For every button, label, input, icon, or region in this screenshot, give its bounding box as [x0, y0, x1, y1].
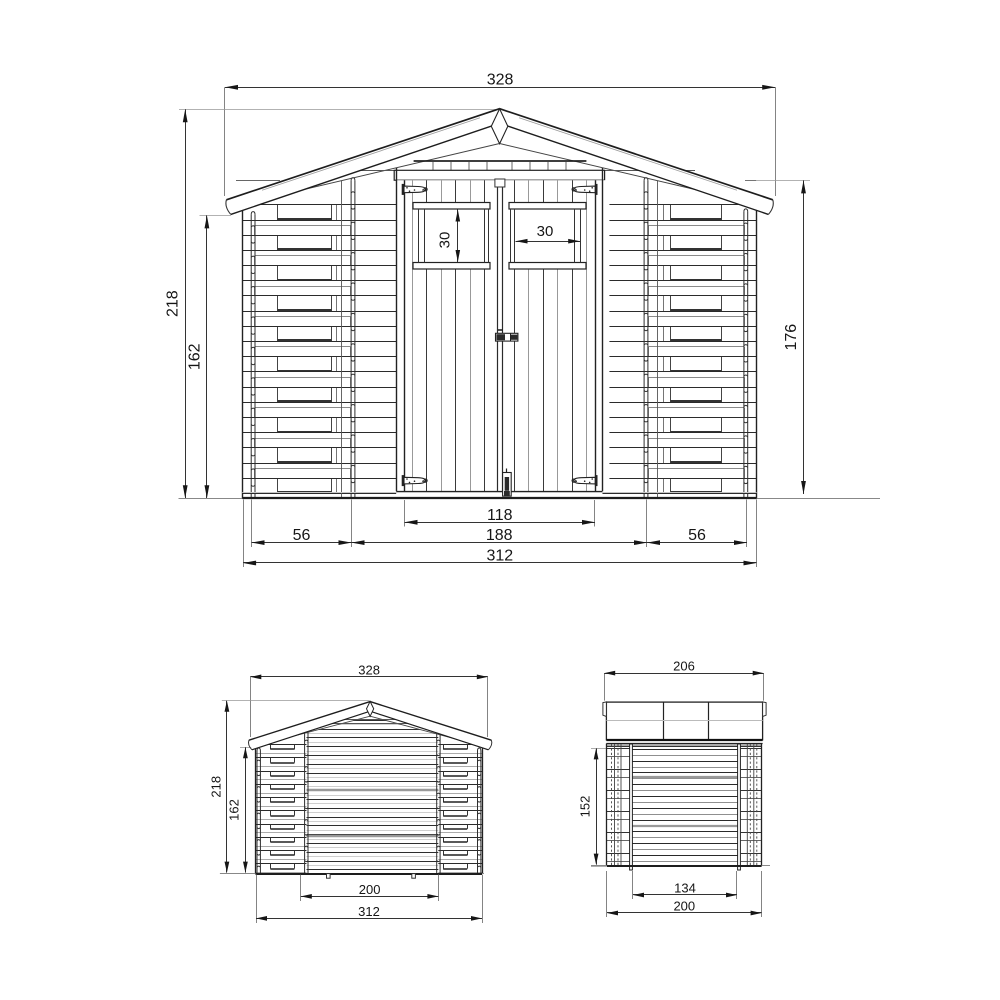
svg-text:134: 134	[674, 881, 696, 896]
svg-text:56: 56	[688, 527, 706, 544]
svg-text:162: 162	[186, 343, 203, 370]
svg-text:328: 328	[487, 72, 514, 89]
svg-text:162: 162	[227, 799, 242, 821]
svg-text:200: 200	[673, 899, 695, 914]
svg-text:328: 328	[358, 662, 380, 677]
svg-text:312: 312	[486, 548, 513, 565]
svg-text:176: 176	[783, 324, 800, 351]
svg-text:118: 118	[487, 507, 513, 524]
svg-text:206: 206	[673, 659, 695, 674]
svg-text:56: 56	[293, 527, 311, 544]
svg-text:218: 218	[165, 290, 182, 317]
svg-text:200: 200	[359, 882, 381, 897]
svg-text:188: 188	[486, 527, 513, 544]
svg-text:30: 30	[437, 232, 454, 249]
svg-text:152: 152	[577, 796, 592, 818]
svg-text:218: 218	[208, 776, 223, 798]
svg-text:30: 30	[537, 223, 554, 240]
svg-text:312: 312	[358, 904, 380, 919]
